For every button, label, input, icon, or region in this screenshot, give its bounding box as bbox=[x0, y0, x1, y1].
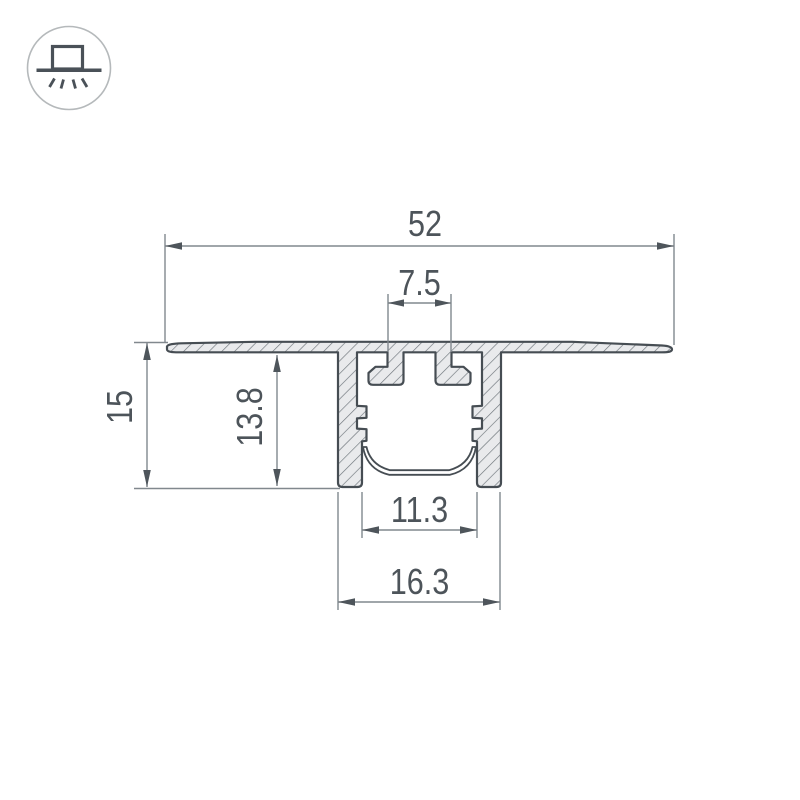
drawing-page: 52 7.5 15 13.8 11.3 bbox=[0, 0, 800, 800]
arrow-icon bbox=[338, 598, 355, 606]
dim-clip-slot-width: 7.5 bbox=[388, 264, 451, 352]
icon-light-rays bbox=[50, 79, 88, 89]
arrow-icon bbox=[273, 469, 281, 486]
arrow-icon bbox=[165, 242, 182, 250]
dim-label-7-5: 7.5 bbox=[398, 264, 441, 304]
dim-body-depth: 13.8 bbox=[231, 355, 281, 486]
dim-label-15: 15 bbox=[101, 390, 141, 424]
dim-label-52: 52 bbox=[408, 205, 442, 245]
drawing-canvas: 52 7.5 15 13.8 11.3 bbox=[0, 0, 800, 800]
arrow-icon bbox=[273, 355, 281, 372]
dim-label-13-8: 13.8 bbox=[231, 387, 271, 447]
arrow-icon bbox=[143, 343, 151, 360]
arrow-icon bbox=[657, 242, 674, 250]
arrow-icon bbox=[460, 526, 477, 534]
icon-lamp-housing bbox=[53, 47, 83, 70]
arrow-icon bbox=[362, 526, 379, 534]
dim-total-depth: 15 bbox=[101, 343, 340, 489]
diffuser bbox=[363, 447, 476, 475]
dim-label-11-3: 11.3 bbox=[391, 491, 448, 531]
recessed-light-icon bbox=[28, 27, 111, 110]
arrow-icon bbox=[483, 598, 500, 606]
dim-inner-width: 11.3 bbox=[362, 491, 477, 538]
arrow-icon bbox=[143, 470, 151, 487]
dim-label-16-3: 16.3 bbox=[390, 563, 450, 603]
